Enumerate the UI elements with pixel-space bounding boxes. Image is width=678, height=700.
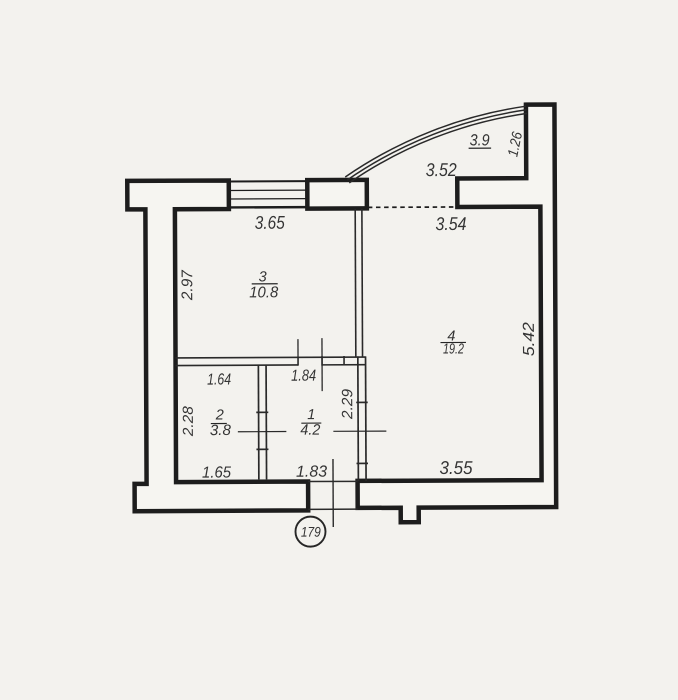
svg-text:3.54: 3.54 (435, 213, 466, 234)
svg-text:4.2: 4.2 (300, 422, 321, 439)
svg-text:2.28: 2.28 (181, 406, 197, 437)
svg-text:2.29: 2.29 (339, 388, 356, 420)
svg-text:1.84: 1.84 (291, 368, 316, 385)
svg-text:5.42: 5.42 (521, 322, 538, 356)
svg-text:1.83: 1.83 (296, 464, 327, 481)
svg-text:3.55: 3.55 (439, 457, 473, 478)
svg-text:3.9: 3.9 (470, 132, 490, 149)
svg-text:10.8: 10.8 (249, 284, 278, 301)
svg-text:1.64: 1.64 (207, 371, 231, 388)
svg-text:3.52: 3.52 (426, 159, 458, 180)
svg-text:2.97: 2.97 (179, 269, 196, 301)
svg-text:3.8: 3.8 (210, 422, 232, 439)
svg-text:1.65: 1.65 (202, 464, 231, 481)
svg-text:179: 179 (301, 524, 321, 540)
svg-text:3: 3 (259, 269, 267, 285)
svg-text:3.65: 3.65 (255, 212, 286, 233)
svg-text:19.2: 19.2 (443, 341, 464, 357)
